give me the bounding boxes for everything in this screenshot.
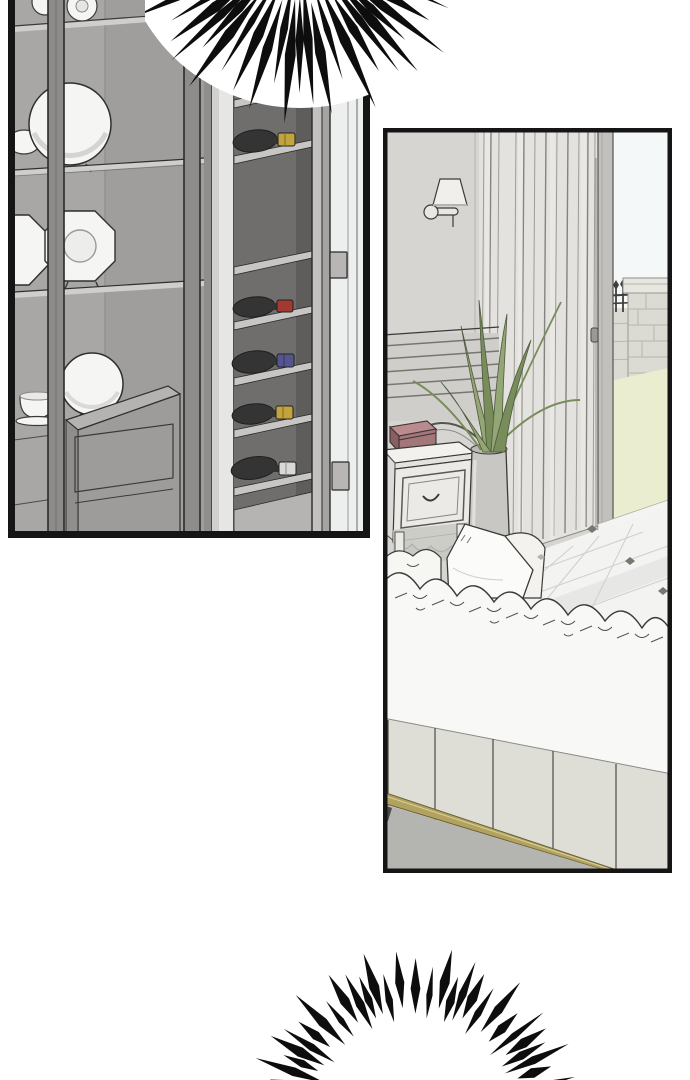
speed-line-ray: [465, 988, 494, 1034]
speed-line-ray: [439, 950, 452, 1009]
wine-rack: [212, 0, 330, 538]
speed-line-ray: [383, 974, 394, 1022]
comic-page: [0, 0, 690, 1080]
cabinet-door: [330, 0, 364, 538]
stone-pillar: [623, 278, 670, 381]
panel-display-cabinet: [8, 0, 370, 538]
speed-line-ray: [489, 1013, 518, 1042]
speed-line-ray: [502, 1042, 546, 1066]
speed-line-ray: [426, 967, 433, 1019]
panel-bedroom: [383, 128, 672, 873]
speed-line-ray: [490, 1012, 544, 1055]
speed-line-ray: [359, 976, 376, 1018]
speed-line-ray: [326, 1001, 354, 1037]
speed-line-ray: [452, 962, 475, 1021]
door-handle: [591, 328, 598, 342]
speed-line-ray: [364, 954, 383, 1015]
speed-line-ray: [271, 1036, 325, 1066]
speed-line-ray: [284, 1029, 335, 1062]
speed-line-ray: [345, 974, 372, 1029]
lawn: [605, 368, 668, 524]
speed-line-ray: [395, 951, 404, 1008]
display-cabinet: [8, 0, 212, 538]
speed-line-ray: [329, 975, 358, 1023]
speed-line-ray: [462, 974, 484, 1018]
bedroom-scene: [383, 128, 672, 873]
door-hinge-bottom: [332, 462, 349, 490]
speed-line-ray: [481, 982, 521, 1032]
burst-emphasis-bottom: [240, 935, 590, 1080]
speed-line-ray: [411, 958, 421, 1014]
speed-line-ray: [296, 995, 346, 1045]
speed-line-ray: [283, 1055, 318, 1071]
speed-line-ray: [298, 1022, 330, 1047]
display-cabinet-scene: [8, 0, 370, 538]
speed-line-ray: [505, 1044, 569, 1074]
speed-line-rays-bottom: [256, 950, 576, 1080]
speed-line-ray: [517, 1066, 551, 1078]
door-hinge-top: [330, 38, 347, 64]
door-hinge-middle: [330, 252, 347, 278]
speed-line-ray: [506, 1028, 546, 1055]
speed-line-ray: [256, 1058, 326, 1080]
tufted-couch: [383, 573, 672, 873]
speed-line-ray: [444, 977, 458, 1022]
